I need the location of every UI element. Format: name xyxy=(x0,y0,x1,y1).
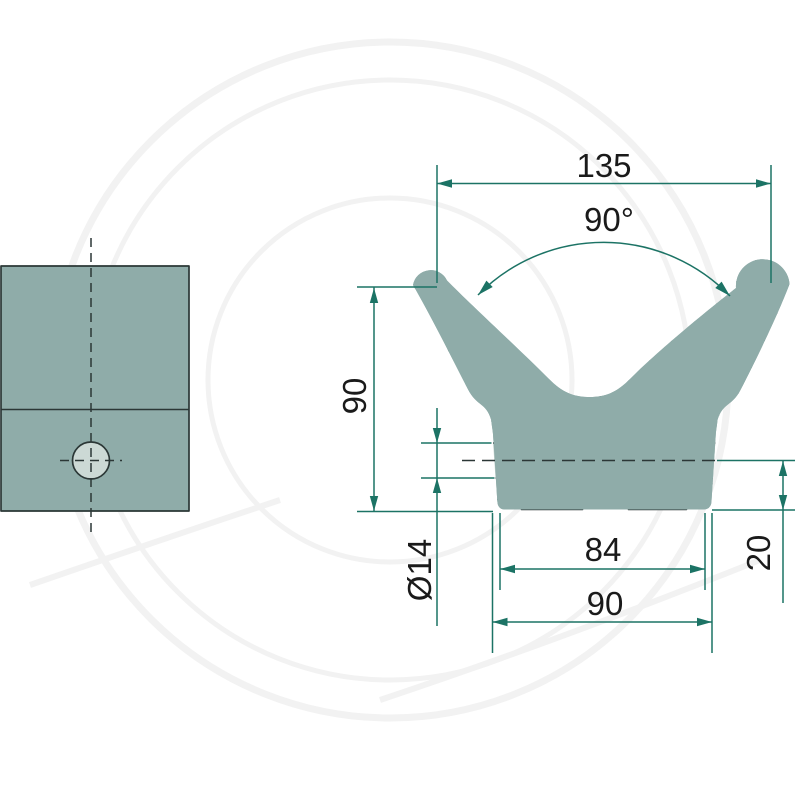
label-tip-angle: 90° xyxy=(584,201,634,238)
dimension-hole-offset: 20 xyxy=(712,461,795,604)
arrow-up xyxy=(370,288,378,303)
dimension-inner-base-width: 84 xyxy=(500,513,705,590)
arrow-left xyxy=(437,179,452,187)
label-overall-width: 135 xyxy=(576,147,631,184)
arrow-right xyxy=(697,618,712,626)
arrow-left xyxy=(493,618,508,626)
label-overall-height: 90 xyxy=(336,378,373,415)
dimension-hole-diameter: Ø14 xyxy=(401,408,495,626)
drawing-canvas: 135 90° 90 Ø14 xyxy=(0,0,800,800)
arrow-down xyxy=(370,496,378,511)
label-hole-diameter: Ø14 xyxy=(401,539,438,601)
arrow-down xyxy=(779,495,787,510)
arrow-up xyxy=(433,478,441,493)
label-inner-base-width: 84 xyxy=(585,531,622,568)
side-view xyxy=(1,238,189,533)
technical-drawing: 135 90° 90 Ø14 xyxy=(0,0,800,800)
arrow-left xyxy=(500,565,515,573)
arrow-right xyxy=(756,179,771,187)
label-outer-base-width: 90 xyxy=(587,585,624,622)
arrow-down xyxy=(433,428,441,443)
front-view xyxy=(413,259,790,509)
arrow-right xyxy=(690,565,705,573)
label-hole-offset: 20 xyxy=(740,535,777,572)
v-body-outline xyxy=(413,259,790,509)
arrow-up xyxy=(779,461,787,476)
